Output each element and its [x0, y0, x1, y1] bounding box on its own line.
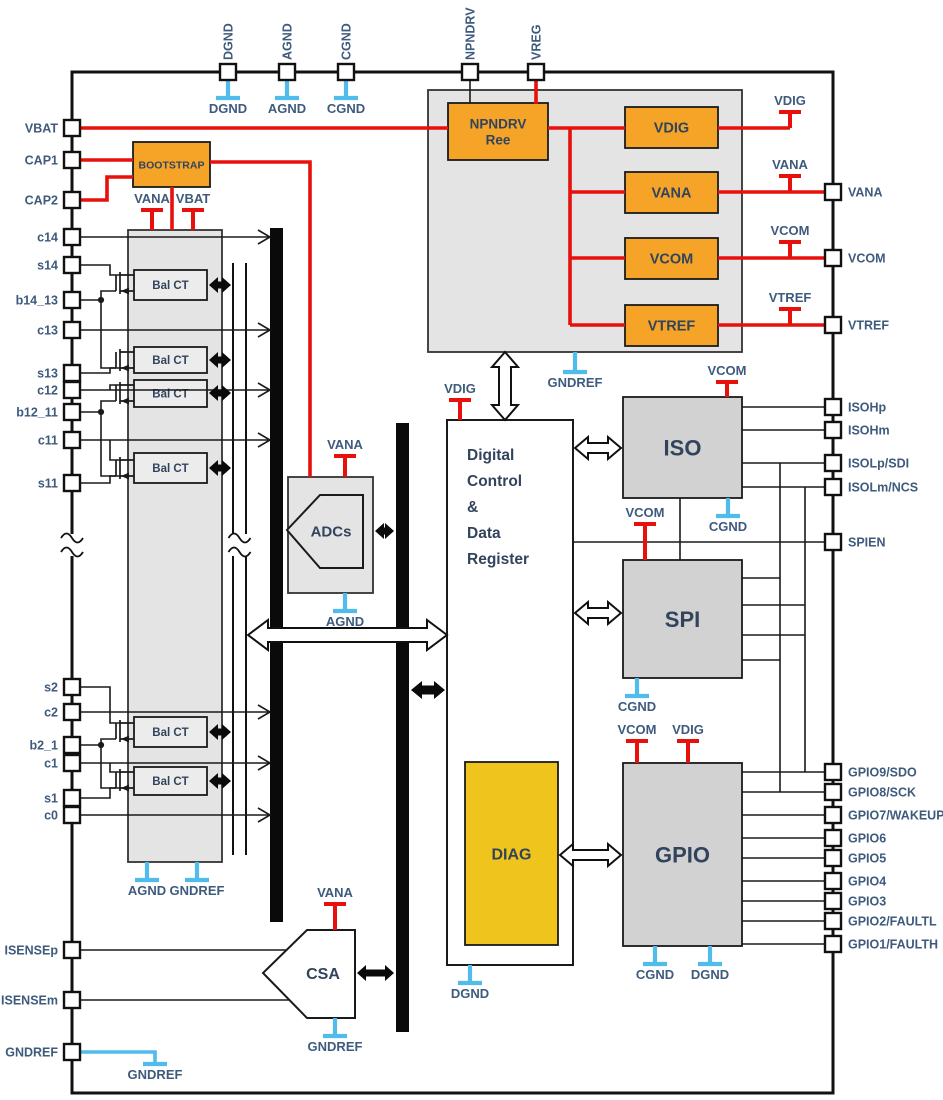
npndrv-reg-label: Ree — [486, 132, 511, 147]
power-tap-vbat-icon — [182, 210, 204, 230]
power-wire — [210, 162, 310, 477]
pin-isensem — [64, 992, 80, 1008]
pin-isohm — [825, 422, 841, 438]
pin-b12-11 — [64, 404, 80, 420]
ground-cgnd-label: CGND — [636, 967, 674, 982]
power-tap-vcom-label: VCOM — [626, 505, 665, 520]
fet-arrow-icon — [121, 288, 129, 295]
power-tap-vdig-label: VDIG — [444, 381, 476, 396]
signal-wire — [80, 788, 120, 798]
power-tap-vana-icon — [334, 456, 356, 477]
pin-s2-label: s2 — [44, 681, 58, 695]
block-diagram: NPNDRVReeVDIGVANAVCOMVTREFBOOTSTRAPDigit… — [0, 0, 943, 1100]
bootstrap-label: BOOTSTRAP — [139, 159, 205, 171]
pin-gpio6 — [825, 830, 841, 846]
balct-6-label: Bal CT — [152, 776, 188, 788]
adcs-label: ADCs — [311, 523, 352, 540]
power-tap-vana-label: VANA — [327, 437, 363, 452]
pin-s14-label: s14 — [37, 259, 58, 273]
pin-isohp-label: ISOHp — [848, 401, 887, 415]
signal-wire — [80, 368, 120, 373]
pin-b2-1-label: b2_1 — [30, 739, 59, 753]
power-tap-vdig-label: VDIG — [774, 93, 806, 108]
analog-bus-2 — [396, 423, 409, 1032]
pin-npndrv-label: NPNDRV — [464, 7, 478, 60]
pin-cap2 — [64, 192, 80, 208]
pin-c0 — [64, 807, 80, 823]
pin-s11 — [64, 475, 80, 491]
pin-npndrv — [462, 64, 478, 80]
pin-vbat-label: VBAT — [25, 122, 58, 136]
iso-label: ISO — [664, 435, 702, 460]
pin-gpio8-sck — [825, 784, 841, 800]
csa-label: CSA — [306, 966, 340, 983]
pin-c2-label: c2 — [44, 706, 58, 720]
signal-wire — [110, 440, 120, 460]
diag-to-gpio-arrow — [560, 844, 621, 866]
pin-isensem-label: ISENSEm — [1, 994, 58, 1008]
signal-wire — [80, 476, 120, 483]
diag-label: DIAG — [492, 846, 532, 863]
pin-gpio9-sdo-label: GPIO9/SDO — [848, 766, 917, 780]
pin-c12-label: c12 — [37, 384, 58, 398]
digital-control-label: Register — [467, 551, 529, 568]
power-tap-vcom-icon — [626, 741, 648, 763]
ground-gndref-label: GNDREF — [170, 883, 225, 898]
pin-cgnd — [338, 64, 354, 80]
power-to-digital-arrow — [492, 352, 518, 420]
digital-to-spi-arrow — [575, 602, 621, 624]
pin-gpio6-label: GPIO6 — [848, 832, 886, 846]
digital-control-label: Data — [467, 525, 501, 542]
pin-isolp-sdi — [825, 455, 841, 471]
ground-cgnd-icon — [625, 678, 649, 696]
power-tap-vdig-icon — [449, 400, 471, 420]
diagram-canvas: NPNDRVReeVDIGVANAVCOMVTREFBOOTSTRAPDigit… — [0, 0, 943, 1100]
ground-cgnd-label: CGND — [327, 101, 365, 116]
ground-agnd-icon — [333, 593, 357, 611]
pin-b14-13-label: b14_13 — [16, 294, 58, 308]
signal-wire — [101, 300, 116, 368]
power-tap-vana-label: VANA — [317, 885, 353, 900]
vtref-reg-label: VTREF — [648, 319, 696, 335]
pin-vcom-label: VCOM — [848, 252, 886, 266]
npndrv-reg-label: NPNDRV — [470, 116, 527, 131]
pin-vreg — [528, 64, 544, 80]
pin-s1 — [64, 790, 80, 806]
pin-c11-label: c11 — [38, 434, 58, 448]
vdig-reg-label: VDIG — [654, 121, 689, 137]
pin-agnd — [279, 64, 295, 80]
ground-agnd-label: AGND — [326, 614, 364, 629]
ground-agnd-label: AGND — [268, 101, 306, 116]
power-tap-vcom-icon — [779, 242, 801, 258]
pin-c14-label: c14 — [37, 231, 58, 245]
power-tap-vcom-label: VCOM — [618, 722, 657, 737]
ground-agnd-icon — [135, 862, 159, 880]
pin-isolp-sdi-label: ISOLp/SDI — [848, 457, 909, 471]
power-tap-vbat-label: VBAT — [176, 191, 210, 206]
pin-c13-label: c13 — [37, 324, 58, 338]
pin-cap1 — [64, 152, 80, 168]
digital-control-label: Digital — [467, 447, 514, 464]
pin-gpio1-faulth — [825, 936, 841, 952]
junction-dot — [98, 409, 104, 415]
power-tap-vdig-label: VDIG — [672, 722, 704, 737]
ground-gndref-icon — [563, 352, 587, 372]
pin-vbat — [64, 120, 80, 136]
pin-c12 — [64, 382, 80, 398]
pin-gpio5-label: GPIO5 — [848, 852, 886, 866]
signal-wire — [101, 745, 116, 788]
ground-gndref-label: GNDREF — [128, 1067, 183, 1082]
pin-gndref-label: GNDREF — [5, 1046, 58, 1060]
signal-wire — [110, 763, 120, 772]
ground-cgnd-icon — [643, 946, 667, 964]
pin-gpio2-faultl — [825, 913, 841, 929]
spi-label: SPI — [665, 607, 700, 632]
pin-s14 — [64, 257, 80, 273]
pin-gndref — [64, 1044, 80, 1060]
power-tap-vana-label: VANA — [772, 157, 808, 172]
pin-s11-label: s11 — [38, 477, 58, 491]
pin-agnd-label: AGND — [281, 23, 295, 60]
power-tap-vcom-label: VCOM — [771, 223, 810, 238]
ground-gndref-icon — [185, 862, 209, 880]
ground-dgnd-icon — [216, 80, 240, 98]
ground-cgnd-icon — [334, 80, 358, 98]
power-tap-vdig-icon — [779, 112, 801, 128]
pin-spien-label: SPIEN — [848, 536, 886, 550]
ground-dgnd-icon — [458, 965, 482, 983]
digital-to-iso-arrow — [575, 437, 621, 459]
pin-c2 — [64, 704, 80, 720]
pin-gpio8-sck-label: GPIO8/SCK — [848, 786, 916, 800]
digital-control-label: & — [467, 499, 478, 516]
pin-gpio4 — [825, 873, 841, 889]
fet-arrow-icon — [121, 365, 129, 372]
fet-arrow-icon — [121, 785, 129, 792]
pin-c1 — [64, 755, 80, 771]
signal-wire — [101, 412, 116, 476]
balct-5-label: Bal CT — [152, 727, 188, 739]
ground-cgnd-label: CGND — [709, 519, 747, 534]
pin-gpio3 — [825, 893, 841, 909]
pin-b2-1 — [64, 737, 80, 753]
power-tap-vtref-icon — [779, 309, 801, 325]
ground-gndref-label: GNDREF — [548, 375, 603, 390]
ground-gndref-icon — [323, 1018, 347, 1036]
signal-wire — [80, 265, 120, 275]
ground-cgnd-label: CGND — [618, 699, 656, 714]
pin-gpio3-label: GPIO3 — [848, 895, 886, 909]
pin-isohm-label: ISOHm — [848, 424, 890, 438]
pin-c1-label: c1 — [44, 757, 58, 771]
pin-gpio7-wakeup — [825, 807, 841, 823]
vana-reg-label: VANA — [651, 186, 692, 202]
power-tap-vana-icon — [324, 904, 346, 930]
junction-dot — [98, 742, 104, 748]
power-tap-vcom-label: VCOM — [708, 363, 747, 378]
pin-spien — [825, 534, 841, 550]
power-tap-vana-label: VANA — [134, 191, 170, 206]
power-tap-vdig-icon — [677, 741, 699, 763]
pin-vana — [825, 184, 841, 200]
pin-dgnd-label: DGND — [222, 23, 236, 60]
pin-s13-label: s13 — [37, 367, 58, 381]
pin-cgnd-label: CGND — [340, 23, 354, 60]
gpio-label: GPIO — [655, 842, 710, 867]
pin-c11 — [64, 432, 80, 448]
pin-isensep — [64, 942, 80, 958]
pin-vcom — [825, 250, 841, 266]
pin-isolm-ncs-label: ISOLm/NCS — [848, 481, 918, 495]
ground-cgnd-icon — [716, 498, 740, 516]
ground-dgnd-label: DGND — [451, 986, 489, 1001]
pin-s2 — [64, 679, 80, 695]
pin-gpio9-sdo — [825, 764, 841, 780]
pin-gpio1-faulth-label: GPIO1/FAULTH — [848, 938, 938, 952]
pin-b12-11-label: b12_11 — [16, 406, 58, 420]
ground-dgnd-label: DGND — [209, 101, 247, 116]
pin-s13 — [64, 365, 80, 381]
pin-c0-label: c0 — [44, 809, 58, 823]
pin-vreg-label: VREG — [530, 25, 544, 60]
signal-wire — [80, 687, 120, 723]
pin-gpio7-wakeup-label: GPIO7/WAKEUP — [848, 809, 943, 823]
pin-cap1-label: CAP1 — [25, 154, 58, 168]
ground-gndref-label: GNDREF — [308, 1039, 363, 1054]
pin-c13 — [64, 322, 80, 338]
vcom-reg-label: VCOM — [650, 252, 694, 268]
balct-2-label: Bal CT — [152, 355, 188, 367]
balct-1-label: Bal CT — [152, 280, 188, 292]
bus-digital-arrow — [411, 681, 445, 699]
ground-dgnd-icon — [698, 946, 722, 964]
fet-arrow-icon — [121, 736, 129, 743]
digital-control-label: Control — [467, 473, 522, 490]
pin-b14-13 — [64, 292, 80, 308]
pin-cap2-label: CAP2 — [25, 194, 58, 208]
fet-arrow-icon — [121, 473, 129, 480]
adc-bus-arrow — [375, 523, 394, 539]
ground-agnd-icon — [275, 80, 299, 98]
ground-dgnd-label: DGND — [691, 967, 729, 982]
pin-s1-label: s1 — [44, 792, 58, 806]
power-wire — [80, 177, 133, 200]
power-tap-vana-icon — [779, 176, 801, 192]
junction-dot — [98, 297, 104, 303]
pin-isensep-label: ISENSEp — [5, 944, 59, 958]
pin-vtref — [825, 317, 841, 333]
fet-arrow-icon — [121, 398, 129, 405]
pin-gpio5 — [825, 850, 841, 866]
pin-vtref-label: VTREF — [848, 319, 889, 333]
ground-agnd-label: AGND — [128, 883, 166, 898]
pin-dgnd — [220, 64, 236, 80]
pin-c14 — [64, 229, 80, 245]
pin-isohp — [825, 399, 841, 415]
pin-isolm-ncs — [825, 479, 841, 495]
pin-vana-label: VANA — [848, 186, 883, 200]
analog-bus-1 — [270, 228, 283, 922]
power-tap-vcom-icon — [716, 382, 738, 397]
pin-gpio2-faultl-label: GPIO2/FAULTL — [848, 915, 937, 929]
power-tap-vana-icon — [141, 210, 163, 230]
pin-gpio4-label: GPIO4 — [848, 875, 886, 889]
power-tap-vtref-label: VTREF — [769, 290, 812, 305]
balct-4-label: Bal CT — [152, 463, 188, 475]
csa-bus-arrow — [357, 965, 394, 981]
